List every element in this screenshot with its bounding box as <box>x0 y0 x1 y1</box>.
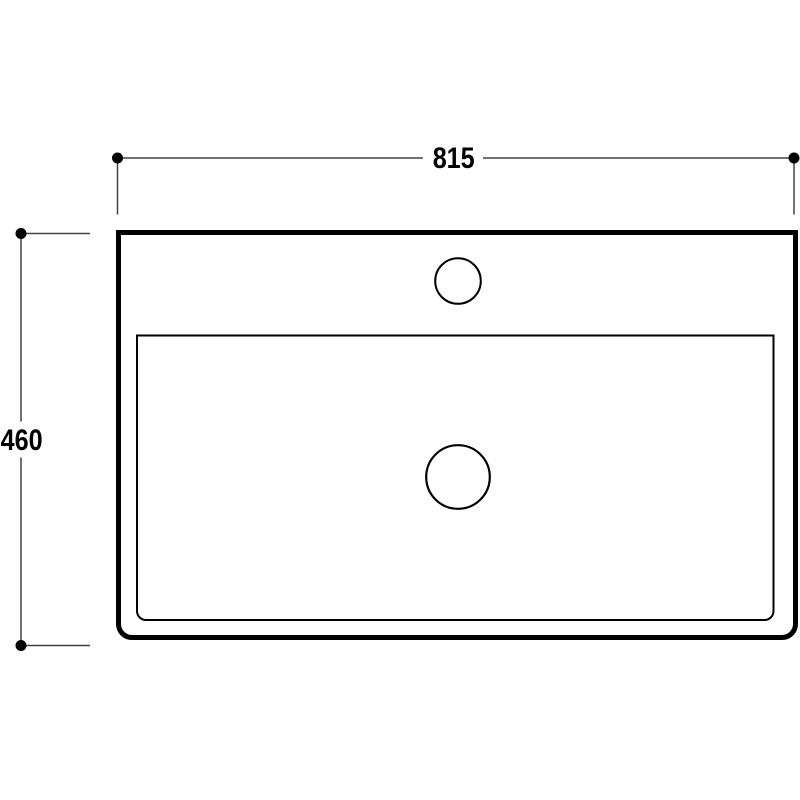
svg-text:460: 460 <box>1 424 43 457</box>
svg-text:815: 815 <box>433 142 475 175</box>
